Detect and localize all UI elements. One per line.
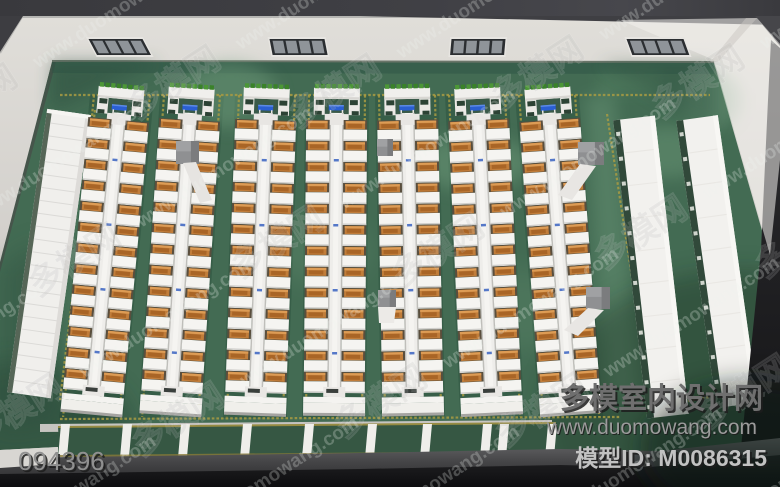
svg-text:www.duomowang.com: www.duomowang.com <box>546 416 757 439</box>
svg-text:多模室内设计网: 多模室内设计网 <box>560 381 763 415</box>
svg-text:模型ID: M0086315: 模型ID: M0086315 <box>575 445 767 471</box>
svg-text:094396: 094396 <box>18 446 105 476</box>
